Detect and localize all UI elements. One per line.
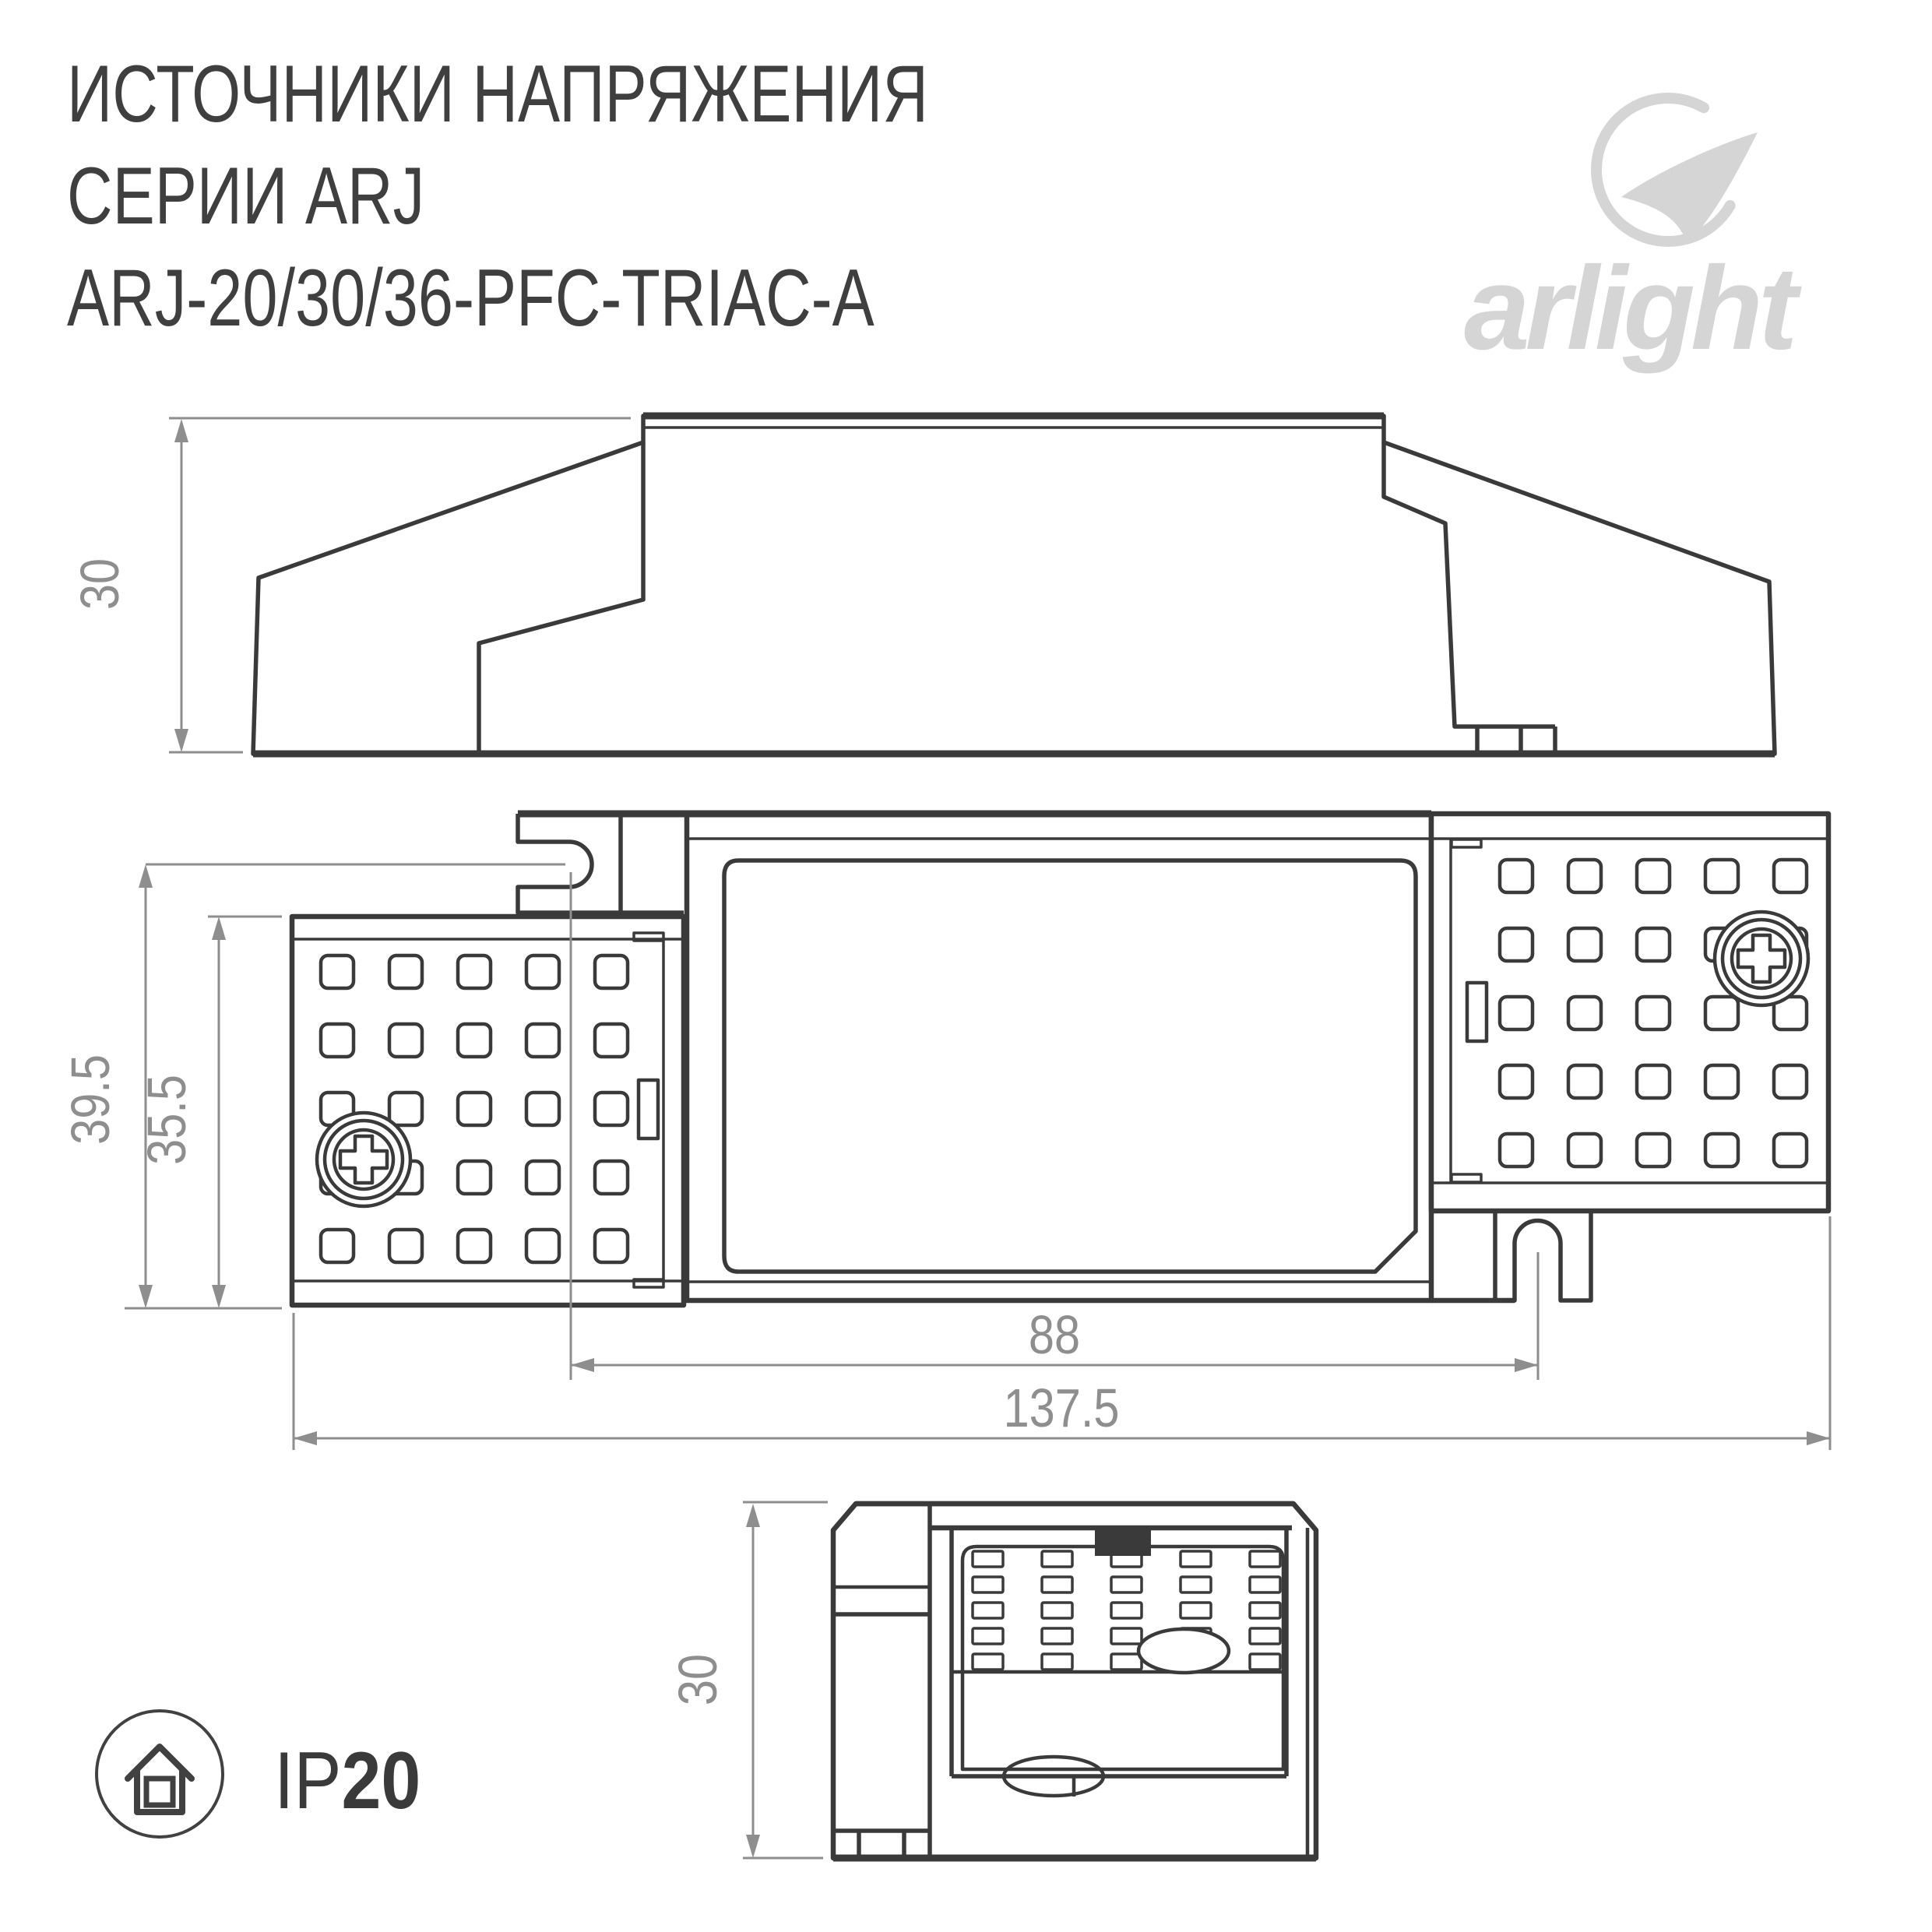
vent-hole — [1637, 997, 1670, 1029]
arrow-left-icon — [294, 1431, 317, 1445]
vent-hole — [595, 1161, 628, 1194]
vent-hole — [1250, 1577, 1280, 1592]
arrow-down-icon — [746, 1835, 760, 1858]
dim-label-outer-height: 39.5 — [59, 1054, 121, 1145]
ip-rating-label: IP20 — [274, 1735, 421, 1828]
vent-hole — [1042, 1628, 1072, 1644]
end-view-dimension: 30 — [667, 1502, 828, 1858]
vent-hole — [595, 1230, 628, 1262]
arrow-up-icon — [139, 864, 153, 888]
arrow-left-icon — [571, 1358, 594, 1372]
arrow-down-icon — [139, 1285, 153, 1308]
vent-hole — [1500, 997, 1533, 1029]
vent-hole — [321, 955, 354, 988]
connector-slot — [1095, 1526, 1151, 1556]
ip-value: 20 — [341, 1736, 421, 1826]
end-outline — [833, 1504, 1316, 1858]
vent-hole — [595, 1093, 628, 1125]
vent-hole — [1500, 860, 1533, 892]
vent-hole — [1568, 997, 1601, 1029]
vent-hole — [1042, 1577, 1072, 1592]
latch — [639, 1080, 658, 1138]
terminal-block-left — [292, 917, 684, 1305]
latch — [1467, 983, 1487, 1041]
end-view: 30 — [667, 1502, 1316, 1858]
vent-hole — [1774, 1065, 1807, 1098]
vent-hole — [1250, 1603, 1280, 1618]
vent-hole — [1568, 860, 1601, 892]
vent-hole — [1705, 1134, 1738, 1167]
vent-hole — [526, 1230, 559, 1262]
vent-hole — [389, 1093, 422, 1125]
vent-hole — [1637, 928, 1670, 961]
ip-prefix: IP — [274, 1736, 341, 1826]
mounting-slot-icon — [1495, 1211, 1591, 1300]
vent-hole — [389, 955, 422, 988]
vent-hole — [526, 1161, 559, 1194]
vent-hole — [1042, 1603, 1072, 1618]
vent-hole — [973, 1577, 1003, 1592]
vent-hole — [526, 1024, 559, 1057]
vent-hole — [1250, 1551, 1280, 1567]
side-outline — [253, 416, 1775, 754]
vent-hole — [1181, 1577, 1211, 1592]
arrow-up-icon — [174, 419, 188, 442]
indoor-house-icon — [98, 1712, 221, 1835]
house-window — [146, 1779, 173, 1805]
arrow-up-icon — [746, 1504, 760, 1527]
vent-hole — [1181, 1551, 1211, 1567]
body-outline — [687, 814, 1431, 1300]
vent-hole — [458, 955, 491, 988]
mounting-ear-bottom-right — [1431, 1211, 1591, 1300]
vent-hole — [458, 1093, 491, 1125]
vent-hole — [389, 1230, 422, 1262]
vent-hole — [595, 1024, 628, 1057]
vent-hole — [1111, 1577, 1142, 1592]
vent-hole — [526, 955, 559, 988]
vent-hole — [458, 1230, 491, 1262]
side-view: 30 — [69, 416, 1775, 754]
vent-hole — [1637, 1065, 1670, 1098]
knockout-oval — [1138, 1629, 1229, 1673]
vent-hole — [595, 955, 628, 988]
vent-hole — [1774, 860, 1807, 892]
page: ИСТОЧНИКИ НАПРЯЖЕНИЯ СЕРИИ ARJ ARJ-20/30… — [0, 0, 1932, 1932]
vent-hole — [1774, 1134, 1807, 1167]
vent-hole — [973, 1628, 1003, 1644]
arrow-right-icon — [1515, 1358, 1538, 1372]
vent-hole — [973, 1654, 1003, 1670]
vent-hole — [1705, 1065, 1738, 1098]
screw-icon — [1715, 912, 1808, 1005]
arrow-right-icon — [1807, 1431, 1830, 1445]
dim-label-inner-height: 35.5 — [135, 1075, 197, 1165]
vent-hole — [1500, 928, 1533, 961]
vent-hole — [1181, 1603, 1211, 1618]
vent-hole — [1111, 1603, 1142, 1618]
vent-hole — [389, 1024, 422, 1057]
dim-label-end-height: 30 — [667, 1654, 728, 1705]
dimension-drawing: 30 — [0, 0, 1932, 1932]
arrow-up-icon — [212, 917, 226, 940]
dim-label-side-height: 30 — [69, 558, 130, 610]
arrow-down-icon — [174, 729, 188, 752]
vent-hole — [1705, 997, 1738, 1029]
vent-hole — [1250, 1654, 1280, 1670]
vent-hole — [1042, 1654, 1072, 1670]
dim-label-total-length: 137.5 — [1004, 1377, 1120, 1438]
vent-hole — [973, 1551, 1003, 1567]
ip-rating-badge — [95, 1709, 224, 1839]
vent-hole — [1568, 928, 1601, 961]
dim-label-hook-spacing: 88 — [1029, 1304, 1080, 1365]
vent-hole — [458, 1024, 491, 1057]
vent-hole — [1568, 1065, 1601, 1098]
block-outline — [1431, 814, 1828, 1211]
vent-hole — [1637, 1134, 1670, 1167]
vent-hole — [973, 1603, 1003, 1618]
vent-hole — [1705, 860, 1738, 892]
top-view: 39.5 35.5 88 137.5 — [59, 814, 1830, 1450]
screw-icon — [317, 1113, 410, 1206]
vent-hole — [526, 1093, 559, 1125]
vent-hole — [321, 1024, 354, 1057]
vent-hole — [458, 1161, 491, 1194]
vent-hole — [1500, 1065, 1533, 1098]
vent-hole — [1042, 1551, 1072, 1567]
vent-hole — [1500, 1134, 1533, 1167]
arrow-down-icon — [212, 1285, 226, 1308]
vent-hole — [1250, 1628, 1280, 1644]
terminal-block-right — [1431, 814, 1828, 1211]
vent-hole — [1637, 860, 1670, 892]
vent-hole — [1568, 1134, 1601, 1167]
vent-hole — [1111, 1628, 1142, 1644]
vent-hole — [321, 1230, 354, 1262]
vent-hole — [1111, 1654, 1142, 1670]
